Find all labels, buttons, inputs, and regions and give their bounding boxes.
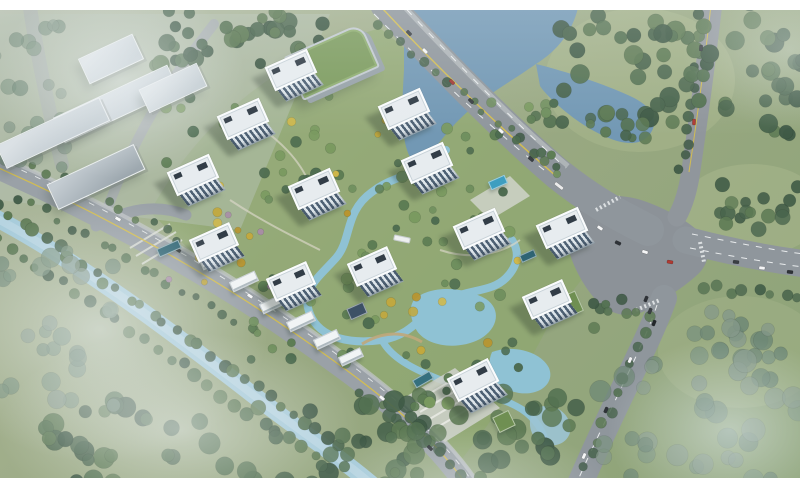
tree xyxy=(439,237,448,246)
tree xyxy=(0,153,11,165)
tree xyxy=(201,380,212,391)
tree xyxy=(595,436,612,453)
tree xyxy=(775,210,790,225)
tree xyxy=(600,105,615,120)
tree xyxy=(779,125,793,139)
tree xyxy=(600,127,611,138)
tree xyxy=(755,284,766,295)
tree xyxy=(583,23,596,36)
tree xyxy=(407,51,415,59)
tree xyxy=(325,143,335,153)
tree xyxy=(235,227,241,233)
tree xyxy=(451,259,462,270)
tree xyxy=(191,338,202,349)
tree xyxy=(7,244,18,255)
tree xyxy=(375,185,384,194)
tree xyxy=(491,410,505,424)
tree xyxy=(161,157,172,168)
tree xyxy=(744,12,761,29)
tree xyxy=(62,256,80,274)
tree xyxy=(745,207,756,218)
tree xyxy=(228,399,241,412)
tree xyxy=(351,434,366,449)
tree xyxy=(355,389,364,398)
tree xyxy=(562,26,577,41)
tree xyxy=(638,437,653,452)
tree xyxy=(237,259,246,268)
tree xyxy=(429,424,446,441)
tree xyxy=(20,255,28,263)
tree xyxy=(633,342,643,352)
tree xyxy=(340,447,355,462)
tree xyxy=(483,338,492,347)
tree xyxy=(102,302,118,318)
tree xyxy=(152,55,169,72)
tree xyxy=(466,185,474,193)
tree xyxy=(759,95,772,108)
tree xyxy=(286,353,297,364)
tree xyxy=(471,360,483,372)
tree xyxy=(693,454,714,475)
tree xyxy=(28,150,43,165)
tree xyxy=(344,210,351,217)
tree xyxy=(722,319,741,338)
tree xyxy=(323,447,339,463)
tree xyxy=(295,440,308,453)
tree xyxy=(719,217,733,231)
tree xyxy=(176,104,185,113)
tree xyxy=(537,148,547,158)
tree xyxy=(231,103,239,111)
tree xyxy=(323,183,334,194)
tree xyxy=(568,399,585,416)
tree xyxy=(541,446,555,460)
tree xyxy=(42,372,61,391)
tree xyxy=(402,351,410,359)
tree xyxy=(4,211,13,220)
tree xyxy=(508,338,518,348)
tree xyxy=(213,218,222,227)
tree xyxy=(733,349,756,372)
tree xyxy=(607,408,618,419)
tree xyxy=(417,346,425,354)
car xyxy=(699,45,703,51)
tree xyxy=(290,136,301,147)
tree xyxy=(563,419,576,432)
tree xyxy=(201,279,207,285)
tree xyxy=(53,327,71,345)
tree xyxy=(759,114,778,133)
tree xyxy=(704,305,719,320)
tree xyxy=(163,225,172,234)
tree xyxy=(683,111,694,122)
tree xyxy=(284,25,296,37)
tree xyxy=(771,78,786,93)
tree xyxy=(303,404,318,419)
tree xyxy=(135,300,144,309)
tree xyxy=(639,132,652,145)
tree xyxy=(213,390,227,404)
tree xyxy=(444,373,454,383)
tree xyxy=(59,276,68,285)
tree xyxy=(380,311,388,319)
tree xyxy=(111,284,119,292)
tree xyxy=(139,334,149,344)
tree xyxy=(762,63,775,76)
tree xyxy=(57,140,71,154)
tree xyxy=(657,65,672,80)
car xyxy=(759,266,765,270)
tree xyxy=(399,200,409,210)
tree xyxy=(9,32,24,47)
tree xyxy=(596,20,611,35)
tree xyxy=(429,206,436,213)
tree xyxy=(107,399,120,412)
tree xyxy=(208,301,216,309)
tree xyxy=(396,37,405,46)
tree xyxy=(195,253,204,262)
tree xyxy=(335,428,351,444)
tree xyxy=(268,344,277,353)
tree xyxy=(84,295,96,307)
tree xyxy=(226,364,239,377)
tree xyxy=(101,242,109,250)
tree xyxy=(549,99,558,108)
tree xyxy=(509,125,516,132)
tree xyxy=(384,29,393,38)
tree xyxy=(657,48,671,62)
tree xyxy=(614,366,635,387)
white-frame-bottom xyxy=(0,478,800,485)
tree xyxy=(313,53,330,70)
tree xyxy=(424,397,436,409)
tree xyxy=(363,317,375,329)
tree xyxy=(282,185,290,193)
tree xyxy=(616,294,627,305)
tree xyxy=(47,390,66,409)
tree xyxy=(783,194,796,207)
tree xyxy=(298,175,308,185)
tree xyxy=(552,163,560,171)
tree xyxy=(56,88,67,99)
tree xyxy=(792,293,800,302)
tree xyxy=(621,118,635,132)
tree xyxy=(711,280,722,291)
tree xyxy=(41,248,61,268)
tree xyxy=(620,130,631,141)
tree xyxy=(556,116,569,129)
tree xyxy=(150,268,159,277)
tree xyxy=(547,151,556,160)
tree xyxy=(42,316,57,331)
tree xyxy=(497,426,517,446)
tree xyxy=(276,402,285,411)
tree xyxy=(475,302,485,312)
tree xyxy=(309,130,320,141)
tree xyxy=(477,392,490,405)
tree xyxy=(467,147,474,154)
tree xyxy=(478,109,484,115)
tree xyxy=(630,69,646,85)
tree xyxy=(42,431,56,445)
tree xyxy=(691,376,707,392)
tree xyxy=(711,342,728,359)
tree xyxy=(160,102,172,114)
tree xyxy=(56,162,67,173)
tree xyxy=(681,150,690,159)
tree xyxy=(182,27,194,39)
tree xyxy=(556,83,571,98)
tree xyxy=(445,460,455,470)
tree xyxy=(782,290,793,301)
tree xyxy=(258,122,268,132)
tree xyxy=(249,317,259,327)
tree xyxy=(693,9,704,20)
tree xyxy=(645,360,659,374)
tree xyxy=(491,450,510,469)
tree xyxy=(54,112,68,126)
tree xyxy=(553,170,561,178)
tree xyxy=(347,348,355,356)
tree xyxy=(368,240,378,250)
tree xyxy=(197,39,208,50)
tree xyxy=(157,318,166,327)
tree xyxy=(735,284,747,296)
tree xyxy=(105,197,114,206)
tree xyxy=(164,420,180,436)
tree xyxy=(412,178,420,186)
tree xyxy=(267,283,273,289)
tree xyxy=(512,136,521,145)
tree xyxy=(359,275,367,283)
tree xyxy=(742,418,766,442)
tree xyxy=(205,351,216,362)
tree xyxy=(105,259,120,274)
tree xyxy=(269,430,283,444)
tree xyxy=(486,98,496,108)
tree xyxy=(93,268,102,277)
tree xyxy=(258,229,264,235)
tree xyxy=(473,430,492,449)
tree xyxy=(220,21,233,34)
tree xyxy=(341,273,353,285)
tree xyxy=(69,349,87,367)
tree xyxy=(698,282,710,294)
tree xyxy=(408,307,418,317)
tree xyxy=(541,108,551,118)
tree xyxy=(514,363,523,372)
tree xyxy=(193,293,200,300)
tree xyxy=(179,289,186,296)
tree xyxy=(438,298,446,306)
tree xyxy=(312,452,321,461)
tree xyxy=(254,381,265,392)
tree xyxy=(531,432,544,445)
tree xyxy=(442,397,455,410)
tree xyxy=(253,112,260,119)
tree xyxy=(188,126,199,137)
tree xyxy=(325,92,333,100)
tree xyxy=(279,168,287,176)
tree xyxy=(269,274,277,282)
tree xyxy=(632,308,640,316)
tree xyxy=(627,28,641,42)
tree xyxy=(588,298,599,309)
tree xyxy=(82,454,94,466)
tree xyxy=(625,431,640,446)
tree xyxy=(4,269,17,282)
tree xyxy=(339,461,350,472)
tree xyxy=(287,339,295,347)
tree xyxy=(58,431,74,447)
tree xyxy=(37,343,50,356)
tree xyxy=(650,97,665,112)
tree xyxy=(604,307,613,316)
tree xyxy=(79,405,92,418)
tree xyxy=(494,289,506,301)
tree xyxy=(13,195,22,204)
tree xyxy=(495,121,502,128)
tree xyxy=(409,211,421,223)
tree xyxy=(746,65,759,78)
tree xyxy=(436,186,447,197)
tree xyxy=(159,34,176,51)
tree xyxy=(622,308,632,318)
tree xyxy=(240,374,250,384)
tree xyxy=(717,428,737,448)
tree xyxy=(225,212,231,218)
tree xyxy=(449,279,460,290)
tree xyxy=(761,209,775,223)
tree xyxy=(0,234,2,242)
tree xyxy=(636,381,650,395)
tree xyxy=(363,257,372,266)
tree xyxy=(570,43,586,59)
tree xyxy=(25,223,39,237)
tree xyxy=(596,417,607,428)
tree xyxy=(43,79,54,90)
tree xyxy=(205,251,213,259)
tree xyxy=(412,293,421,302)
tree xyxy=(21,126,36,141)
tree xyxy=(375,131,381,137)
tree xyxy=(170,21,181,32)
tree xyxy=(441,280,448,287)
tree xyxy=(230,319,237,326)
tree xyxy=(27,199,34,206)
tree xyxy=(154,345,164,355)
tree xyxy=(255,58,266,69)
tree xyxy=(419,57,429,67)
tree xyxy=(690,347,708,365)
tree xyxy=(266,390,278,402)
tree xyxy=(219,118,231,130)
tree xyxy=(515,440,529,454)
tree xyxy=(287,117,296,126)
tree xyxy=(423,237,433,247)
tree xyxy=(166,276,172,282)
tree xyxy=(21,329,35,343)
tree xyxy=(461,132,470,141)
tree xyxy=(498,187,507,196)
tree xyxy=(185,93,196,104)
tree xyxy=(396,171,408,183)
tree xyxy=(337,350,347,360)
aerial-rendering-screenshot xyxy=(0,0,800,485)
tree xyxy=(246,233,253,240)
tree xyxy=(121,253,131,263)
tree xyxy=(172,237,180,245)
tree xyxy=(478,213,485,220)
tree xyxy=(270,27,281,38)
tree xyxy=(470,215,477,222)
tree xyxy=(501,347,510,356)
tree xyxy=(740,377,758,395)
tree xyxy=(393,225,400,232)
tree xyxy=(684,140,694,150)
tree xyxy=(151,218,158,225)
tree xyxy=(77,186,86,195)
tree xyxy=(588,322,600,334)
tree xyxy=(681,124,691,134)
tree xyxy=(289,320,296,327)
tree xyxy=(692,93,707,108)
tree xyxy=(433,442,446,455)
tree xyxy=(68,226,77,235)
tree xyxy=(69,288,80,299)
tree xyxy=(640,327,651,338)
tree xyxy=(570,64,589,83)
tree xyxy=(432,69,440,77)
tree xyxy=(298,48,310,60)
tree xyxy=(12,153,27,168)
tree xyxy=(758,192,770,204)
tree xyxy=(81,229,90,238)
tree xyxy=(421,359,431,369)
tree xyxy=(431,217,439,225)
tree xyxy=(216,182,224,190)
tree xyxy=(751,222,766,237)
tree xyxy=(762,351,776,365)
tree xyxy=(290,411,298,419)
tree xyxy=(777,28,790,41)
scene-svg xyxy=(0,0,800,485)
tree xyxy=(213,208,222,217)
tree xyxy=(359,394,380,415)
tree xyxy=(87,189,93,195)
tree xyxy=(97,278,109,290)
tree xyxy=(403,126,411,134)
car xyxy=(692,119,695,125)
tree xyxy=(250,22,265,37)
tree xyxy=(386,432,397,443)
tree xyxy=(179,358,190,369)
tree xyxy=(48,20,60,32)
tree xyxy=(728,453,743,468)
tree xyxy=(394,159,402,167)
tree xyxy=(316,460,328,472)
car xyxy=(733,260,739,264)
tree xyxy=(504,226,515,237)
tree xyxy=(382,117,389,124)
tree xyxy=(42,170,51,179)
tree xyxy=(666,115,680,129)
tree xyxy=(187,368,201,382)
tree xyxy=(407,422,425,440)
tree xyxy=(696,393,714,411)
tree xyxy=(674,165,683,174)
tree xyxy=(766,290,774,298)
